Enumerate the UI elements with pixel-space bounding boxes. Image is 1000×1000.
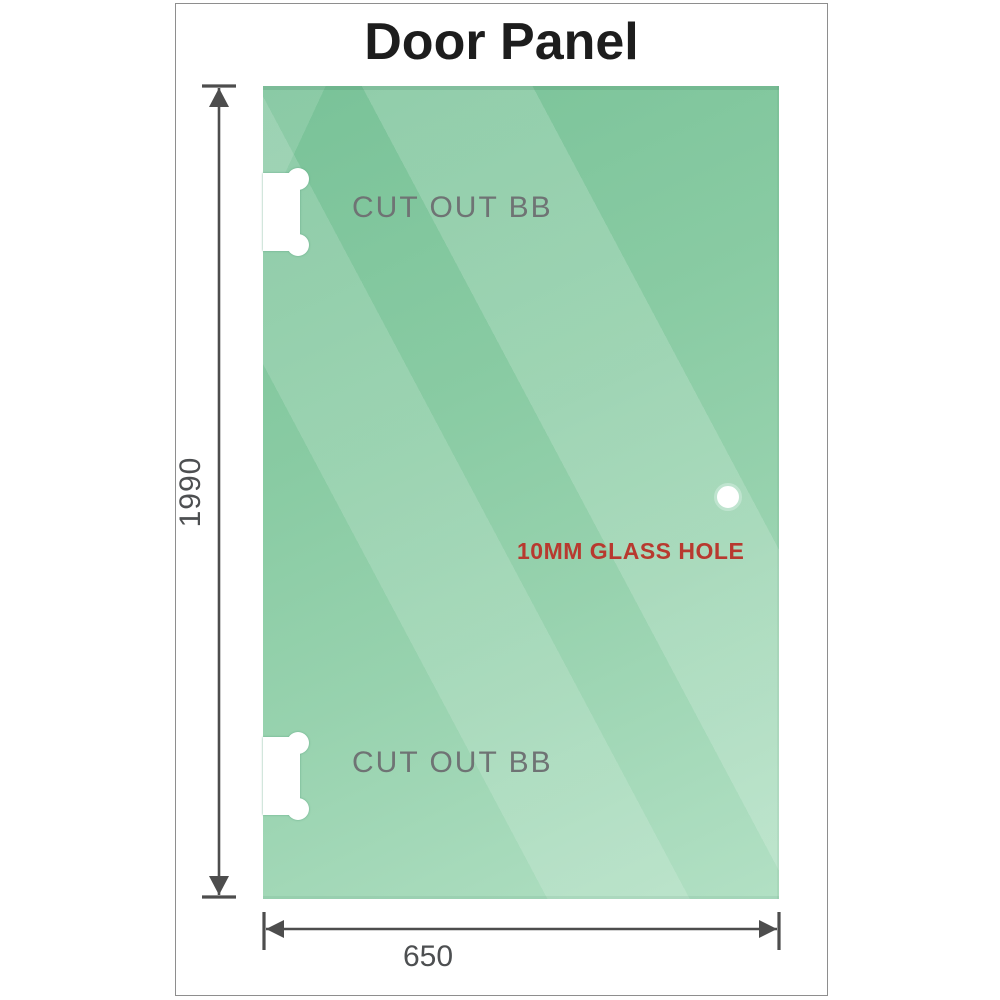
arrowhead-up-icon — [209, 88, 229, 107]
glass-hole-label: 10MM GLASS HOLE — [517, 538, 744, 565]
cutout-bottom-label: CUT OUT BB — [352, 746, 553, 780]
width-dimension-arrow — [256, 908, 788, 956]
hinge-cutout-top — [263, 168, 310, 256]
cutout-top-label: CUT OUT BB — [352, 191, 553, 225]
hinge-cutout-bottom — [263, 732, 310, 820]
diagram-frame: Door Panel CUT OUT BB CUT OUT BB 10MM GL… — [175, 3, 828, 996]
product-diagram-image: Door Panel CUT OUT BB CUT OUT BB 10MM GL… — [0, 0, 1000, 1000]
arrowhead-left-icon — [266, 920, 284, 938]
glass-hole — [714, 483, 742, 511]
cutout-lobe-bottom — [287, 798, 309, 820]
cutout-lobe-top — [287, 732, 309, 754]
cutout-lobe-top — [287, 168, 309, 190]
arrowhead-down-icon — [209, 876, 229, 895]
arrowhead-right-icon — [759, 920, 777, 938]
cutout-lobe-bottom — [287, 234, 309, 256]
width-dimension-label: 650 — [378, 940, 478, 974]
page-title: Door Panel — [176, 12, 827, 72]
height-dimension-label: 1990 — [174, 432, 208, 552]
